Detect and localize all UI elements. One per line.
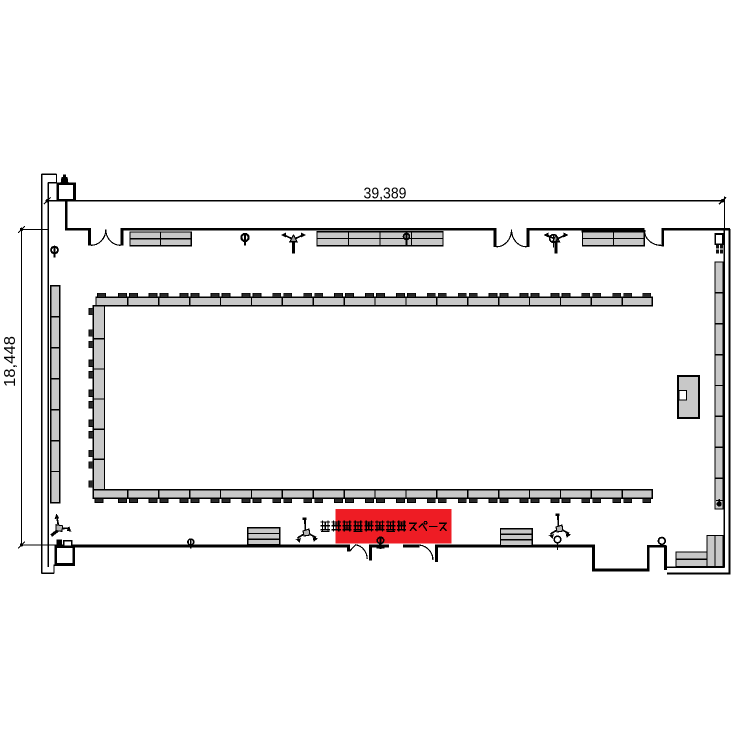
svg-text:39,389: 39,389 (364, 185, 407, 202)
svg-text:18,448: 18,448 (2, 336, 19, 387)
